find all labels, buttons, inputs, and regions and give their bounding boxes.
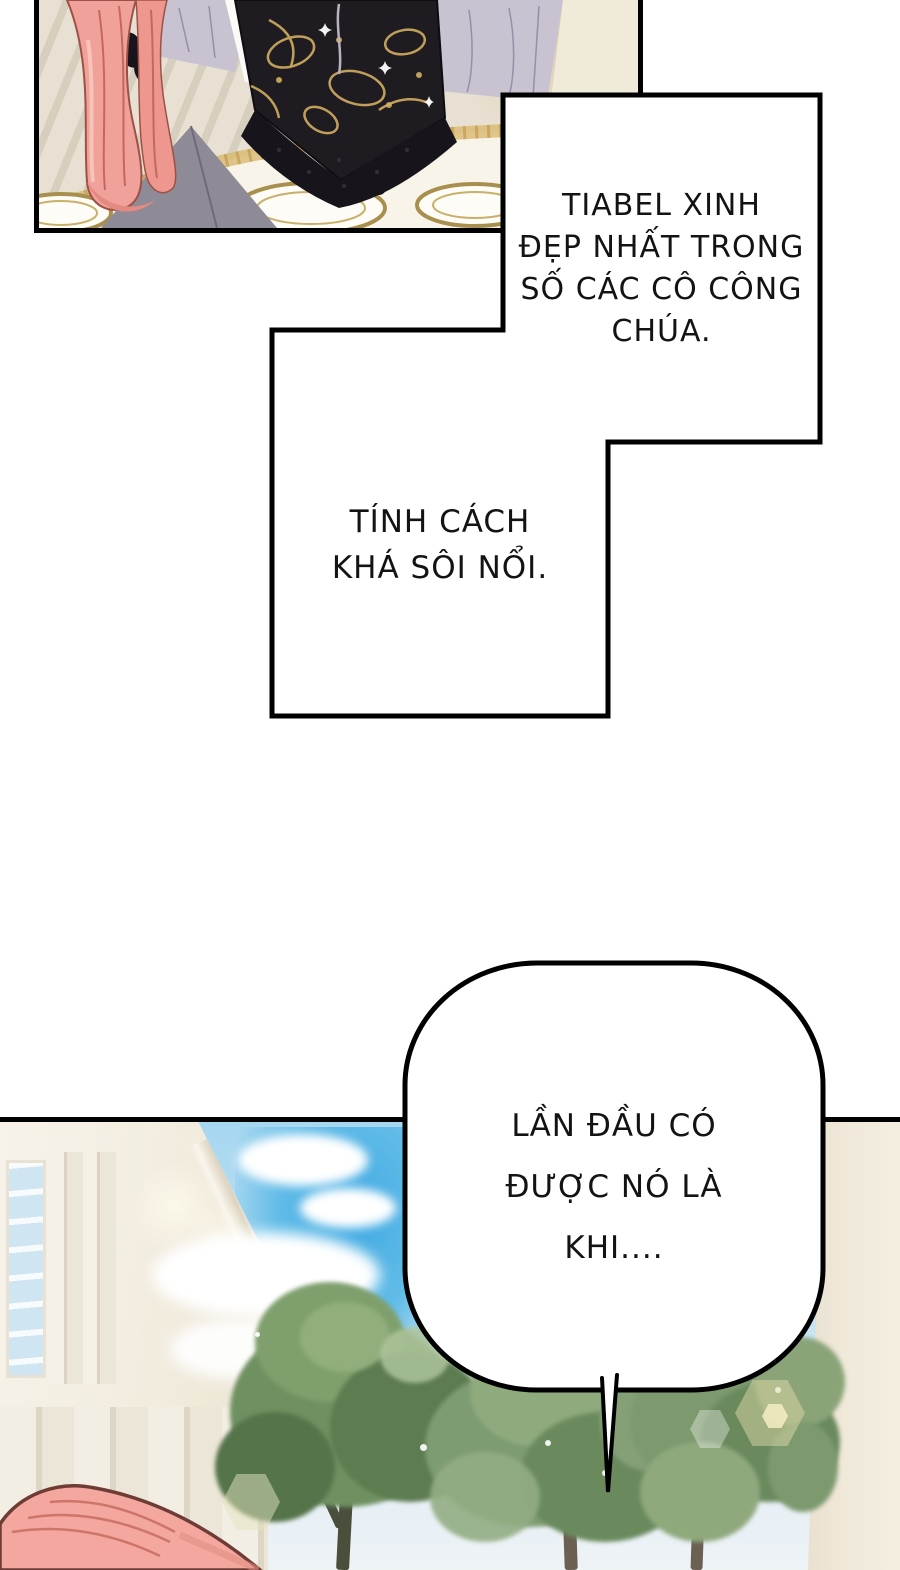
pink-hair-head: [0, 1480, 280, 1570]
speech-line: ĐẸP NHẤT TRONG: [519, 227, 805, 269]
sparkle-dot: [602, 1470, 608, 1476]
tree-foliage: [300, 1302, 390, 1372]
sparkle-dot: [255, 1332, 260, 1337]
speech-line: CHÚA.: [612, 311, 712, 353]
cloud: [300, 1188, 396, 1228]
speech-text-middle-left: TÍNH CÁCH KHÁ SÔI NỔI.: [272, 330, 608, 716]
window-panels: [50, 1152, 116, 1384]
curtain-fabric: [551, 0, 638, 108]
sparkle-dot: [420, 1444, 427, 1451]
speech-line: ĐƯỢC NÓ LÀ: [505, 1157, 722, 1218]
speech-line: KHÁ SÔI NỔI.: [332, 545, 548, 591]
sparkle-dot: [545, 1440, 551, 1446]
speech-line: SỐ CÁC CÔ CÔNG: [521, 269, 803, 311]
speech-line: TIABEL XINH: [562, 185, 761, 227]
tree-foliage: [430, 1452, 540, 1542]
speech-text-bottom-bubble: LẦN ĐẦU CÓ ĐƯỢC NÓ LÀ KHI....: [405, 963, 823, 1390]
speech-line: TÍNH CÁCH: [350, 499, 531, 545]
cloud: [238, 1134, 368, 1186]
speech-line: KHI....: [564, 1218, 663, 1279]
pink-hair: [67, 0, 176, 212]
tree-foliage: [640, 1442, 760, 1542]
comic-page: TIABEL XINH ĐẸP NHẤT TRONG SỐ CÁC CÔ CÔN…: [0, 0, 900, 1570]
speech-line: LẦN ĐẦU CÓ: [511, 1096, 716, 1157]
window-glass: [6, 1160, 46, 1378]
